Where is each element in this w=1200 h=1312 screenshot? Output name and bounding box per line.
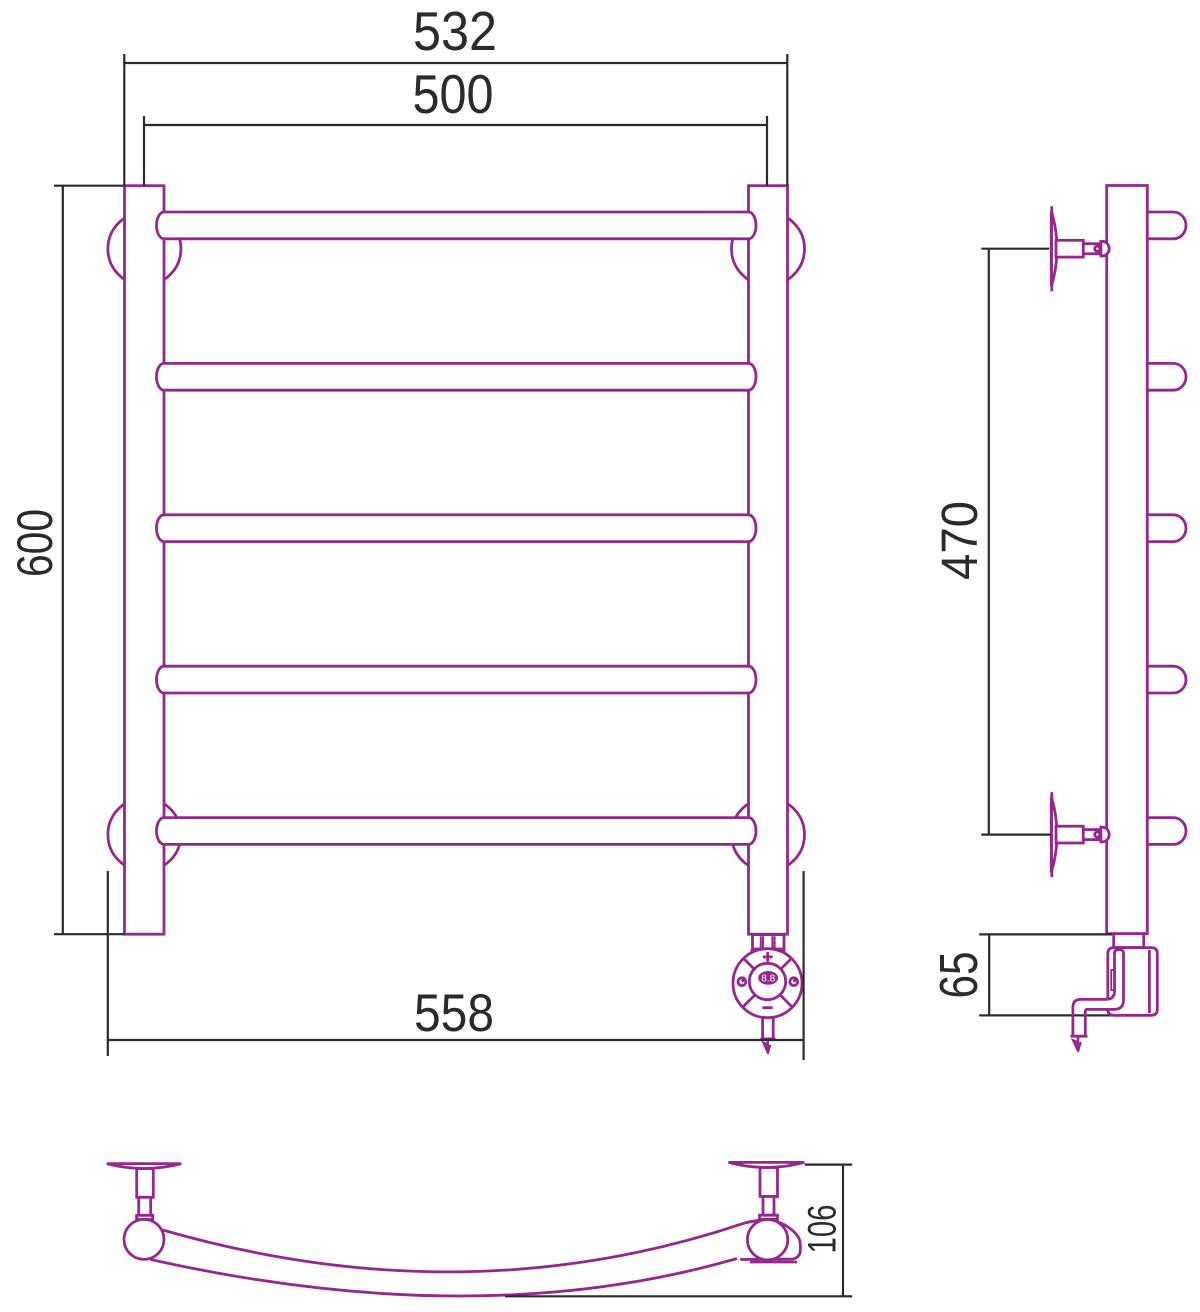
svg-text:8.8: 8.8 <box>761 974 775 985</box>
svg-text:500: 500 <box>413 63 494 125</box>
svg-text:532: 532 <box>413 0 497 62</box>
svg-text:470: 470 <box>931 501 988 580</box>
svg-text:106: 106 <box>801 1205 845 1254</box>
svg-text:65: 65 <box>930 952 989 999</box>
svg-text:558: 558 <box>414 984 494 1043</box>
svg-text:600: 600 <box>7 509 63 577</box>
